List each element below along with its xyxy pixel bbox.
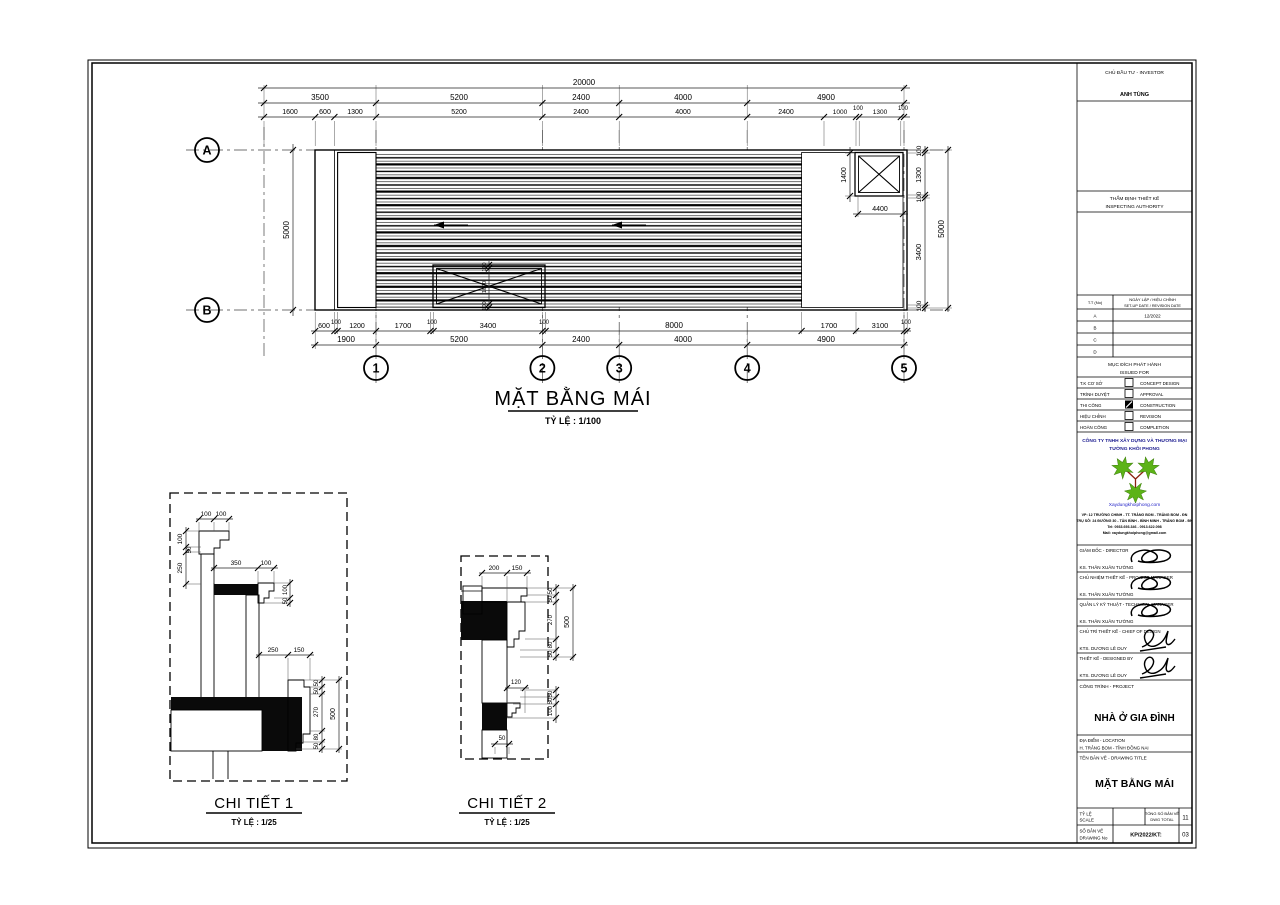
detail-1-title: CHI TIẾT 1 TỶ LỆ : 1/25 <box>206 795 302 827</box>
dim-text: 100 <box>916 300 923 311</box>
signature-name: KS. THÂN XUÂN TƯỜNG <box>1080 564 1134 570</box>
dim-text: 3400 <box>480 321 497 330</box>
signature-section: GIÁM ĐỐC - DIRECTOR KS. THÂN XUÂN TƯỜNG … <box>1080 548 1176 678</box>
location-label: ĐỊA ĐIỂM - LOCATION <box>1080 738 1125 743</box>
metal-roof-hatch <box>376 153 802 308</box>
scale-label-vi: TỶ LỆ <box>1080 812 1092 817</box>
detail-scale: TỶ LỆ : 1/25 <box>231 818 277 827</box>
revision-row-id: D <box>1093 350 1097 355</box>
dim-text: 50 <box>314 687 320 694</box>
issued-row-vi: TRÌNH DUYỆT <box>1080 392 1110 397</box>
detail-boundary <box>170 493 347 781</box>
company-name-line2: TƯỜNG KHÔI PHONG <box>1109 444 1160 452</box>
authority-label-vi: THẨM ĐỊNH THIẾT KẾ <box>1110 195 1159 202</box>
total-label-vi: TỔNG SỐ BẢN VẼ <box>1145 811 1180 816</box>
dim-text: 1700 <box>395 321 412 330</box>
drawing-title-section: TÊN BẢN VẼ - DRAWING TITLE MẶT BẰNG MÁI <box>1080 754 1174 791</box>
grid-label-2: 2 <box>539 362 546 376</box>
authority-section: THẨM ĐỊNH THIẾT KẾ INSPECTING AUTHORITY <box>1105 195 1164 210</box>
dim-text: 80 <box>314 733 320 740</box>
revision-col1-header: T.T (No) <box>1088 300 1103 305</box>
dim-text: 1700 <box>821 321 838 330</box>
revision-table: T.T (No) NGÀY LẬP / HIỆU CHỈNH SET-UP DA… <box>1088 297 1182 355</box>
dim-text: 100 <box>331 320 342 326</box>
dim-text: 50 <box>548 697 554 704</box>
dim-text: 2400 <box>572 93 590 102</box>
dim-text: 500 <box>564 616 571 628</box>
signature-scribble <box>1131 550 1170 563</box>
revision-row-id: A <box>1093 314 1096 319</box>
grid-label-1: 1 <box>373 362 380 376</box>
dim-text: 50 <box>314 679 320 686</box>
total-label-en: DWG TOTAL <box>1150 817 1174 822</box>
plan-title: MẶT BẰNG MÁI TỶ LỆ : 1/100 <box>494 386 651 426</box>
dim-text: 100 <box>482 301 488 310</box>
revision-row-date: 12/2022 <box>1144 314 1161 319</box>
authority-label-en: INSPECTING AUTHORITY <box>1105 204 1164 210</box>
grid-label-4: 4 <box>744 362 751 376</box>
concrete-strip-left <box>338 153 376 308</box>
skylight-box-top <box>855 153 903 197</box>
dim-text: 50 <box>548 595 554 602</box>
signature-role: THIẾT KẾ - DESIGNED BY <box>1080 656 1134 661</box>
grid-label-5: 5 <box>901 362 908 376</box>
signature-role: GIÁM ĐỐC - DIRECTOR <box>1080 548 1129 553</box>
footer-table: TỶ LỆ SCALE TỔNG SỐ BẢN VẼ DWG TOTAL 11 … <box>1080 811 1190 841</box>
dim-text: 3100 <box>872 321 889 330</box>
company-section: CÔNG TY TNHH XÂY DỰNG VÀ THƯƠNG MẠI TƯỜN… <box>1076 436 1193 535</box>
issued-title-en: ISSUED FOR <box>1120 370 1150 376</box>
dim-text: 1300 <box>873 109 888 116</box>
dim-text: 500 <box>330 708 337 720</box>
drawing-view-title: MẶT BẰNG MÁI <box>494 386 651 410</box>
detail-2-shapes <box>461 586 527 758</box>
drawing-title-value: MẶT BẰNG MÁI <box>1095 777 1174 790</box>
dim-text: 4900 <box>817 93 835 102</box>
dim-text: 2400 <box>573 109 589 116</box>
total-value: 11 <box>1182 816 1189 822</box>
issued-row-vi: HIỆU CHỈNH <box>1080 414 1106 419</box>
grid-label-B: B <box>202 304 211 318</box>
issued-row-en: APPROVAL <box>1140 392 1164 397</box>
issued-title-vi: MỤC ĐÍCH PHÁT HÀNH <box>1108 361 1161 368</box>
dim-text: 5200 <box>450 335 468 344</box>
dim-text: 250 <box>268 647 279 654</box>
title-block: CHỦ ĐẦU TƯ - INVESTOR ANH TÙNG THẨM ĐỊNH… <box>1076 63 1193 843</box>
issued-for-section: MỤC ĐÍCH PHÁT HÀNH ISSUED FOR T.K CƠ SỞ … <box>1080 361 1179 431</box>
dim-text: 150 <box>294 647 305 654</box>
issued-row-vi: THI CÔNG <box>1080 403 1102 408</box>
signature-name: KS. THÂN XUÂN TƯỜNG <box>1080 591 1134 597</box>
dim-text: 100 <box>177 533 184 544</box>
signature-name: KTS. DƯƠNG LÊ DUY <box>1080 644 1127 651</box>
roof-body <box>315 150 907 310</box>
project-label: CÔNG TRÌNH - PROJECT <box>1080 683 1135 689</box>
dim-text: 4900 <box>817 335 835 344</box>
checkbox-concept-design <box>1125 379 1133 387</box>
signature-scribble <box>1140 657 1175 678</box>
dim-text: 5000 <box>937 220 946 238</box>
detail-1: 100 100 100 50 250 350 100 100 50 250 15… <box>170 493 347 827</box>
number-label-en: DRAWING No <box>1080 836 1108 841</box>
dim-text: 50 <box>499 736 506 742</box>
cad-canvas: A B 1 2 3 4 5 20000 <box>0 0 1280 905</box>
company-address-line1: VP: 12 TRƯỜNG CHINH - TT. TRẢNG BOM - TR… <box>1082 512 1188 517</box>
issued-row-vi: HOÀN CÔNG <box>1080 425 1108 430</box>
revision-col2-header-vi: NGÀY LẬP / HIỆU CHỈNH <box>1129 297 1176 302</box>
dim-text: 1900 <box>337 335 355 344</box>
dim-text: 5000 <box>282 221 291 239</box>
issued-row-en: CONSTRUCTION <box>1140 403 1175 408</box>
dim-text: 270 <box>314 706 320 717</box>
dim-text: 5200 <box>450 93 468 102</box>
dim-text: 50 <box>283 597 289 604</box>
dim-text: 3500 <box>311 93 329 102</box>
investor-name: ANH TÙNG <box>1120 91 1149 98</box>
company-phone: Tel: 0933.693.346 - 0913.622.098 <box>1107 525 1161 529</box>
investor-section: CHỦ ĐẦU TƯ - INVESTOR ANH TÙNG <box>1105 69 1164 98</box>
dim-text: 100 <box>916 145 923 156</box>
checkbox-approval <box>1125 390 1133 398</box>
dim-text: 600 <box>318 323 330 330</box>
dim-text: 8000 <box>665 321 683 330</box>
concrete-area-right <box>802 153 903 308</box>
company-logo <box>1108 453 1163 503</box>
roof-plan: A B 1 2 3 4 5 20000 <box>186 78 952 426</box>
dim-text: 50 <box>548 587 554 594</box>
issued-row-en: REVISION <box>1140 414 1161 419</box>
dim-text: 50 <box>314 742 320 749</box>
company-website: Xaydungkhoiphong.com <box>1109 502 1160 508</box>
dim-text: 100 <box>216 511 227 518</box>
dim-text: 20000 <box>573 78 596 87</box>
company-address-line2: TRỤ SỞ: 24 ĐƯỜNG 30 - TÂN BÌNH - BÌNH MI… <box>1076 518 1193 523</box>
revision-col2-header-en: SET-UP DATE / REVISION DATE <box>1124 304 1181 308</box>
dim-text: 100 <box>898 106 909 112</box>
drawing-sheet: A B 1 2 3 4 5 20000 <box>0 0 1280 905</box>
company-name-line1: CÔNG TY TNHH XÂY DỰNG VÀ THƯƠNG MẠI <box>1082 436 1187 444</box>
signature-name: KTS. DƯƠNG LÊ DUY <box>1080 671 1127 678</box>
dim-text: 250 <box>177 562 184 573</box>
dim-text: 4000 <box>674 93 692 102</box>
issued-row-en: COMPLETION <box>1140 425 1169 430</box>
grid-label-A: A <box>202 144 211 158</box>
dim-text: 4000 <box>675 109 691 116</box>
location-value: H. TRẢNG BOM - TỈNH ĐỒNG NAI <box>1080 746 1149 751</box>
dim-text: 1000 <box>482 281 488 293</box>
issued-row-vi: T.K CƠ SỞ <box>1080 381 1103 386</box>
dim-text: 270 <box>548 614 554 625</box>
dim-text: 1400 <box>841 167 848 183</box>
signature-name: KS. THÂN XUÂN TƯỜNG <box>1080 618 1134 624</box>
detail-2: 200 150 50 50 270 80 50 500 120 50 50 10… <box>459 556 576 827</box>
revision-row-id: C <box>1093 338 1097 343</box>
dim-text: 100 <box>482 262 488 271</box>
dim-text: 1600 <box>282 109 298 116</box>
dim-text: 100 <box>283 584 289 595</box>
dim-text: 100 <box>853 106 864 112</box>
project-section: CÔNG TRÌNH - PROJECT NHÀ Ở GIA ĐÌNH <box>1080 683 1175 724</box>
revision-row-id: B <box>1093 326 1096 331</box>
dim-text: 80 <box>548 641 554 648</box>
dim-text: 120 <box>511 680 522 686</box>
dim-text: 50 <box>187 546 193 553</box>
project-name: NHÀ Ở GIA ĐÌNH <box>1094 711 1174 724</box>
dim-text: 1200 <box>349 323 365 330</box>
detail-1-dimensions: 100 100 100 50 250 350 100 100 50 250 15… <box>177 511 342 753</box>
detail-2-title: CHI TIẾT 2 TỶ LỆ : 1/25 <box>459 795 555 827</box>
issued-row-en: CONCEPT DESIGN <box>1140 381 1179 386</box>
company-email: Mail: xaydungkhoiphong@gmail.com <box>1103 531 1167 535</box>
dim-text: 100 <box>201 511 212 518</box>
grid-label-3: 3 <box>616 362 623 376</box>
dim-text: 2400 <box>778 109 794 116</box>
dim-text: 600 <box>319 109 331 116</box>
number-label-vi: SỐ BẢN VẼ <box>1080 829 1104 834</box>
dim-text: 3400 <box>914 244 923 261</box>
drawing-number: 03 <box>1182 833 1189 839</box>
dim-text: 4000 <box>674 335 692 344</box>
dim-text: 100 <box>261 560 272 567</box>
dim-text: 100 <box>427 320 438 326</box>
dim-text: 1000 <box>833 109 848 116</box>
dim-text: 200 <box>489 565 500 572</box>
dim-text: 50 <box>548 690 554 697</box>
dim-text: 100 <box>901 320 912 326</box>
detail-title: CHI TIẾT 1 <box>214 795 293 812</box>
location-section: ĐỊA ĐIỂM - LOCATION H. TRẢNG BOM - TỈNH … <box>1080 738 1149 751</box>
dim-text: 1300 <box>347 109 363 116</box>
drawing-view-scale: TỶ LỆ : 1/100 <box>545 415 601 426</box>
checkbox-revision <box>1125 412 1133 420</box>
dim-text: 4400 <box>872 206 888 213</box>
investor-label: CHỦ ĐẦU TƯ - INVESTOR <box>1105 69 1164 76</box>
dim-text: 50 <box>548 650 554 657</box>
dim-text: 100 <box>548 705 554 716</box>
dim-text: 5200 <box>451 109 467 116</box>
scale-label-en: SCALE <box>1080 818 1094 823</box>
dim-text: 2400 <box>572 335 590 344</box>
dim-text: 100 <box>916 191 923 202</box>
drawing-number-value: KP/2022/KT: <box>1130 833 1162 839</box>
detail-title: CHI TIẾT 2 <box>467 795 546 812</box>
dim-text: 100 <box>539 320 550 326</box>
dim-text: 350 <box>231 560 242 567</box>
dim-text: 150 <box>512 565 523 572</box>
dim-text: 1300 <box>916 167 923 183</box>
checkbox-completion <box>1125 423 1133 431</box>
detail-scale: TỶ LỆ : 1/25 <box>484 818 530 827</box>
drawing-title-label: TÊN BẢN VẼ - DRAWING TITLE <box>1080 754 1147 761</box>
